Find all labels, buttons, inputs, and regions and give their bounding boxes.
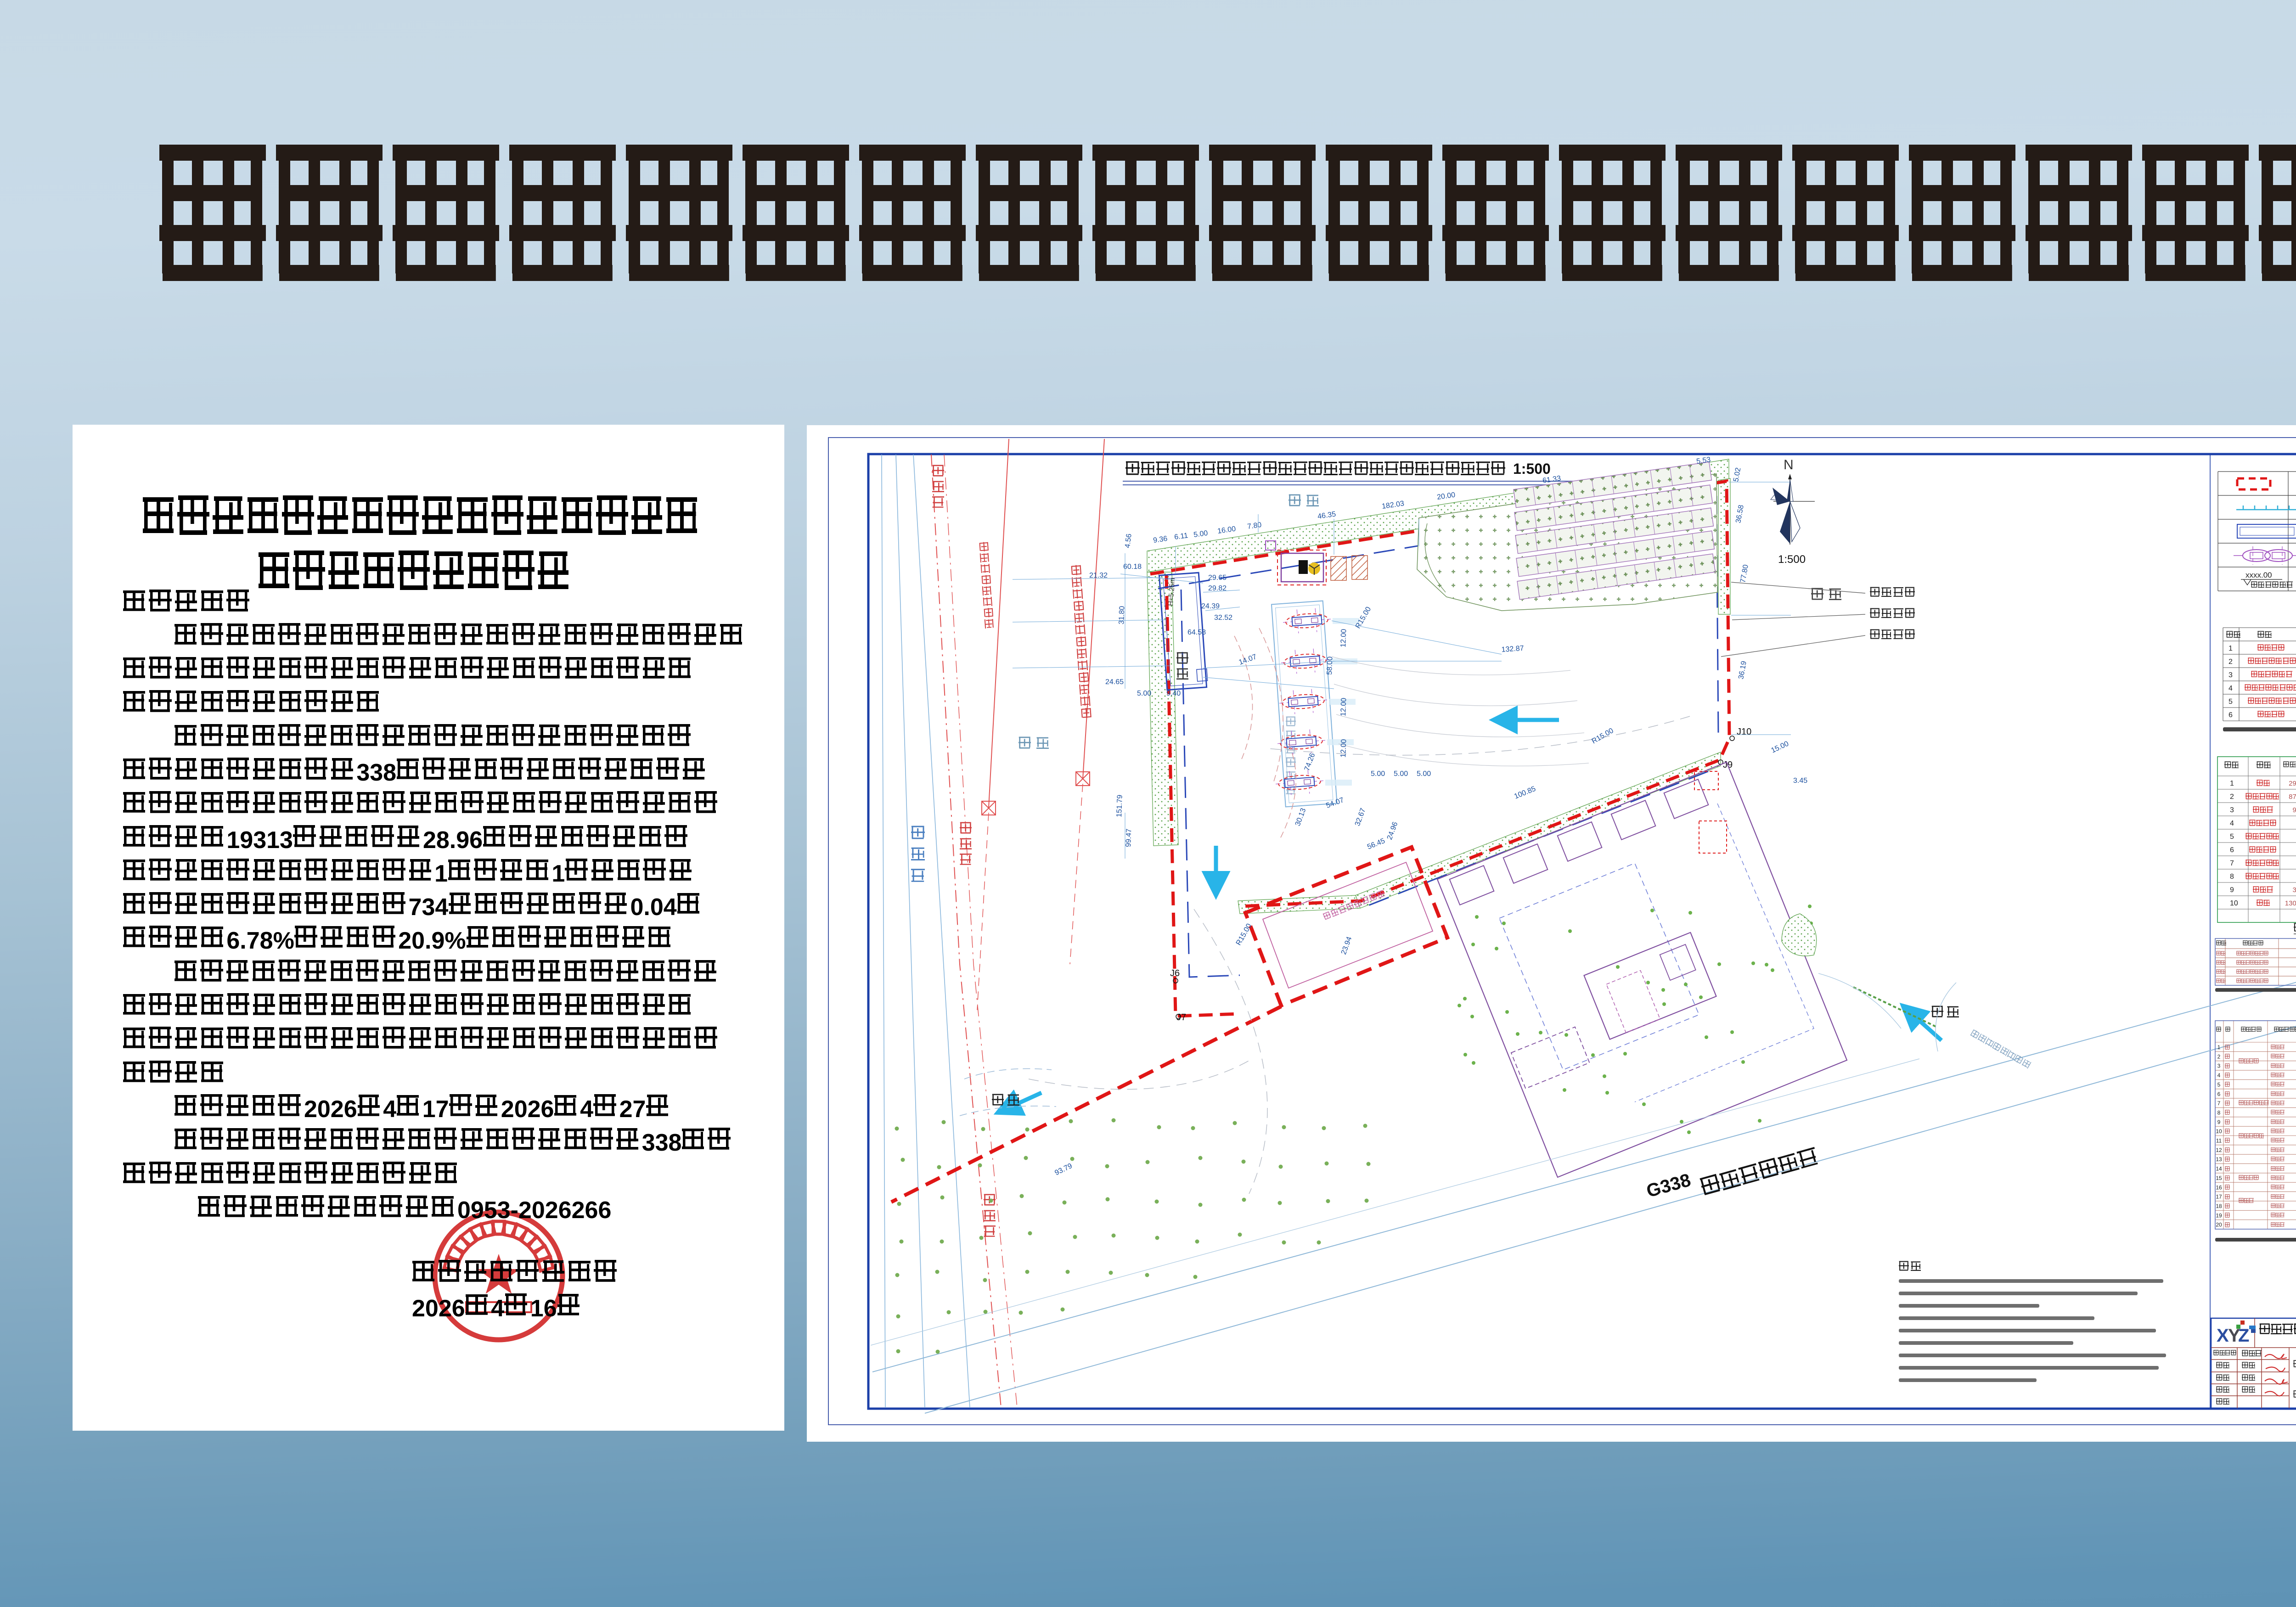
svg-text:R15.00: R15.00 (1591, 727, 1615, 746)
svg-text:12.00: 12.00 (1339, 739, 1348, 758)
svg-text:16.00: 16.00 (1217, 525, 1236, 535)
svg-text:15: 15 (2216, 1175, 2222, 1181)
svg-text:77.80: 77.80 (1739, 564, 1750, 583)
svg-text:18: 18 (2216, 1203, 2222, 1209)
svg-text:5: 5 (2217, 1081, 2221, 1088)
svg-text:5.00: 5.00 (1371, 770, 1385, 778)
svg-text:6: 6 (2230, 846, 2234, 854)
svg-text:9.36: 9.36 (1153, 535, 1168, 545)
svg-text:58.00: 58.00 (1326, 656, 1334, 675)
svg-text:7: 7 (2217, 1100, 2221, 1107)
svg-text:46.35: 46.35 (1317, 511, 1336, 521)
svg-text:5.00: 5.00 (1394, 770, 1408, 778)
svg-text:23.94: 23.94 (1340, 936, 1354, 956)
svg-text:N: N (1784, 457, 1794, 472)
svg-text:16: 16 (2216, 1184, 2222, 1191)
svg-text:151.79: 151.79 (1115, 795, 1124, 818)
svg-text:64.58: 64.58 (1187, 629, 1206, 636)
svg-text:3: 3 (2217, 1063, 2221, 1069)
svg-text:30.00: 30.00 (2292, 886, 2296, 894)
svg-text:10: 10 (2216, 1128, 2222, 1135)
svg-text:9.40: 9.40 (1166, 690, 1181, 697)
svg-text:20.00: 20.00 (1436, 491, 1456, 501)
svg-text:5: 5 (2230, 833, 2234, 841)
svg-text:3.45: 3.45 (1793, 777, 1807, 785)
svg-text:5.02: 5.02 (1732, 467, 1742, 483)
svg-text:15.00: 15.00 (1770, 740, 1790, 754)
svg-text:1: 1 (2228, 645, 2233, 652)
svg-text:11: 11 (2216, 1138, 2222, 1144)
svg-text:14.07: 14.07 (1238, 653, 1258, 667)
svg-text:G338: G338 (1644, 1170, 1693, 1202)
svg-text:32.52: 32.52 (1214, 614, 1232, 622)
svg-text:10: 10 (2230, 899, 2238, 907)
svg-text:5.00: 5.00 (1417, 770, 1431, 778)
svg-text:5.00: 5.00 (1137, 690, 1151, 697)
svg-text:6: 6 (2228, 711, 2233, 719)
svg-text:8: 8 (2217, 1109, 2221, 1116)
svg-text:5.00: 5.00 (1193, 529, 1208, 539)
svg-text:1:500: 1:500 (1778, 553, 1806, 566)
svg-text:12.00: 12.00 (1339, 629, 1348, 647)
svg-text:20: 20 (2216, 1222, 2222, 1228)
svg-text:xxxx.00: xxxx.00 (2245, 571, 2272, 579)
svg-text:74.26: 74.26 (1303, 752, 1317, 772)
svg-text:99.47: 99.47 (1125, 828, 1133, 847)
svg-text:J10: J10 (1737, 727, 1751, 737)
svg-text:60.18: 60.18 (1123, 563, 1142, 571)
svg-text:298.92: 298.92 (2289, 780, 2296, 787)
svg-text:24.96: 24.96 (1386, 821, 1400, 841)
svg-text:1: 1 (2230, 780, 2234, 787)
svg-text:1:500: 1:500 (1513, 461, 1551, 477)
svg-text:132.87: 132.87 (1501, 645, 1524, 654)
svg-text:4: 4 (2230, 820, 2234, 827)
svg-text:24.39: 24.39 (1201, 602, 1220, 610)
svg-text:56.45: 56.45 (1366, 837, 1386, 851)
svg-text:54.07: 54.07 (1325, 796, 1345, 810)
svg-text:4: 4 (2217, 1072, 2221, 1079)
svg-text:6.11: 6.11 (1174, 532, 1188, 541)
svg-text:2: 2 (2230, 793, 2234, 801)
svg-text:X: X (2217, 1326, 2229, 1346)
svg-text:3: 3 (2230, 806, 2234, 814)
svg-text:2: 2 (2228, 658, 2233, 666)
svg-text:12.00: 12.00 (1339, 697, 1348, 716)
svg-text:7.80: 7.80 (1247, 521, 1262, 531)
svg-text:12: 12 (2216, 1147, 2222, 1153)
svg-text:2: 2 (2217, 1053, 2221, 1060)
svg-text:4.56: 4.56 (1124, 533, 1133, 548)
svg-text:17: 17 (2216, 1194, 2222, 1200)
svg-text:8: 8 (2230, 873, 2234, 881)
svg-text:13: 13 (2216, 1156, 2222, 1163)
svg-text:30.13: 30.13 (1294, 807, 1308, 827)
svg-text:7: 7 (2230, 860, 2234, 867)
svg-text:9: 9 (2230, 886, 2234, 894)
svg-text:182.03: 182.03 (1381, 500, 1405, 511)
svg-text:R15.00: R15.00 (1354, 606, 1373, 630)
svg-text:1309.63: 1309.63 (2285, 899, 2296, 907)
svg-text:29.65: 29.65 (1208, 574, 1227, 582)
svg-text:5: 5 (2228, 698, 2233, 706)
svg-text:H=5.25m: H=5.25m (1167, 578, 1176, 606)
svg-text:100.85: 100.85 (1513, 785, 1537, 801)
svg-text:36.19: 36.19 (1737, 660, 1748, 680)
svg-text:J6: J6 (1170, 968, 1180, 978)
svg-text:J7: J7 (1176, 1012, 1186, 1023)
svg-text:6: 6 (2217, 1091, 2221, 1097)
svg-text:870.00: 870.00 (2289, 793, 2296, 801)
svg-text:R15.00: R15.00 (1235, 922, 1254, 947)
svg-text:3: 3 (2228, 671, 2233, 679)
svg-text:36.58: 36.58 (1734, 504, 1745, 523)
svg-text:1: 1 (2217, 1044, 2221, 1051)
svg-text:9: 9 (2217, 1119, 2221, 1125)
svg-text:32.67: 32.67 (1354, 807, 1367, 827)
svg-text:92.82: 92.82 (2292, 806, 2296, 814)
svg-text:19: 19 (2216, 1212, 2222, 1219)
svg-text:14: 14 (2216, 1166, 2222, 1172)
svg-text:24.65: 24.65 (1105, 678, 1124, 686)
svg-text:4: 4 (2228, 685, 2233, 692)
svg-text:93.79: 93.79 (1053, 1162, 1074, 1177)
